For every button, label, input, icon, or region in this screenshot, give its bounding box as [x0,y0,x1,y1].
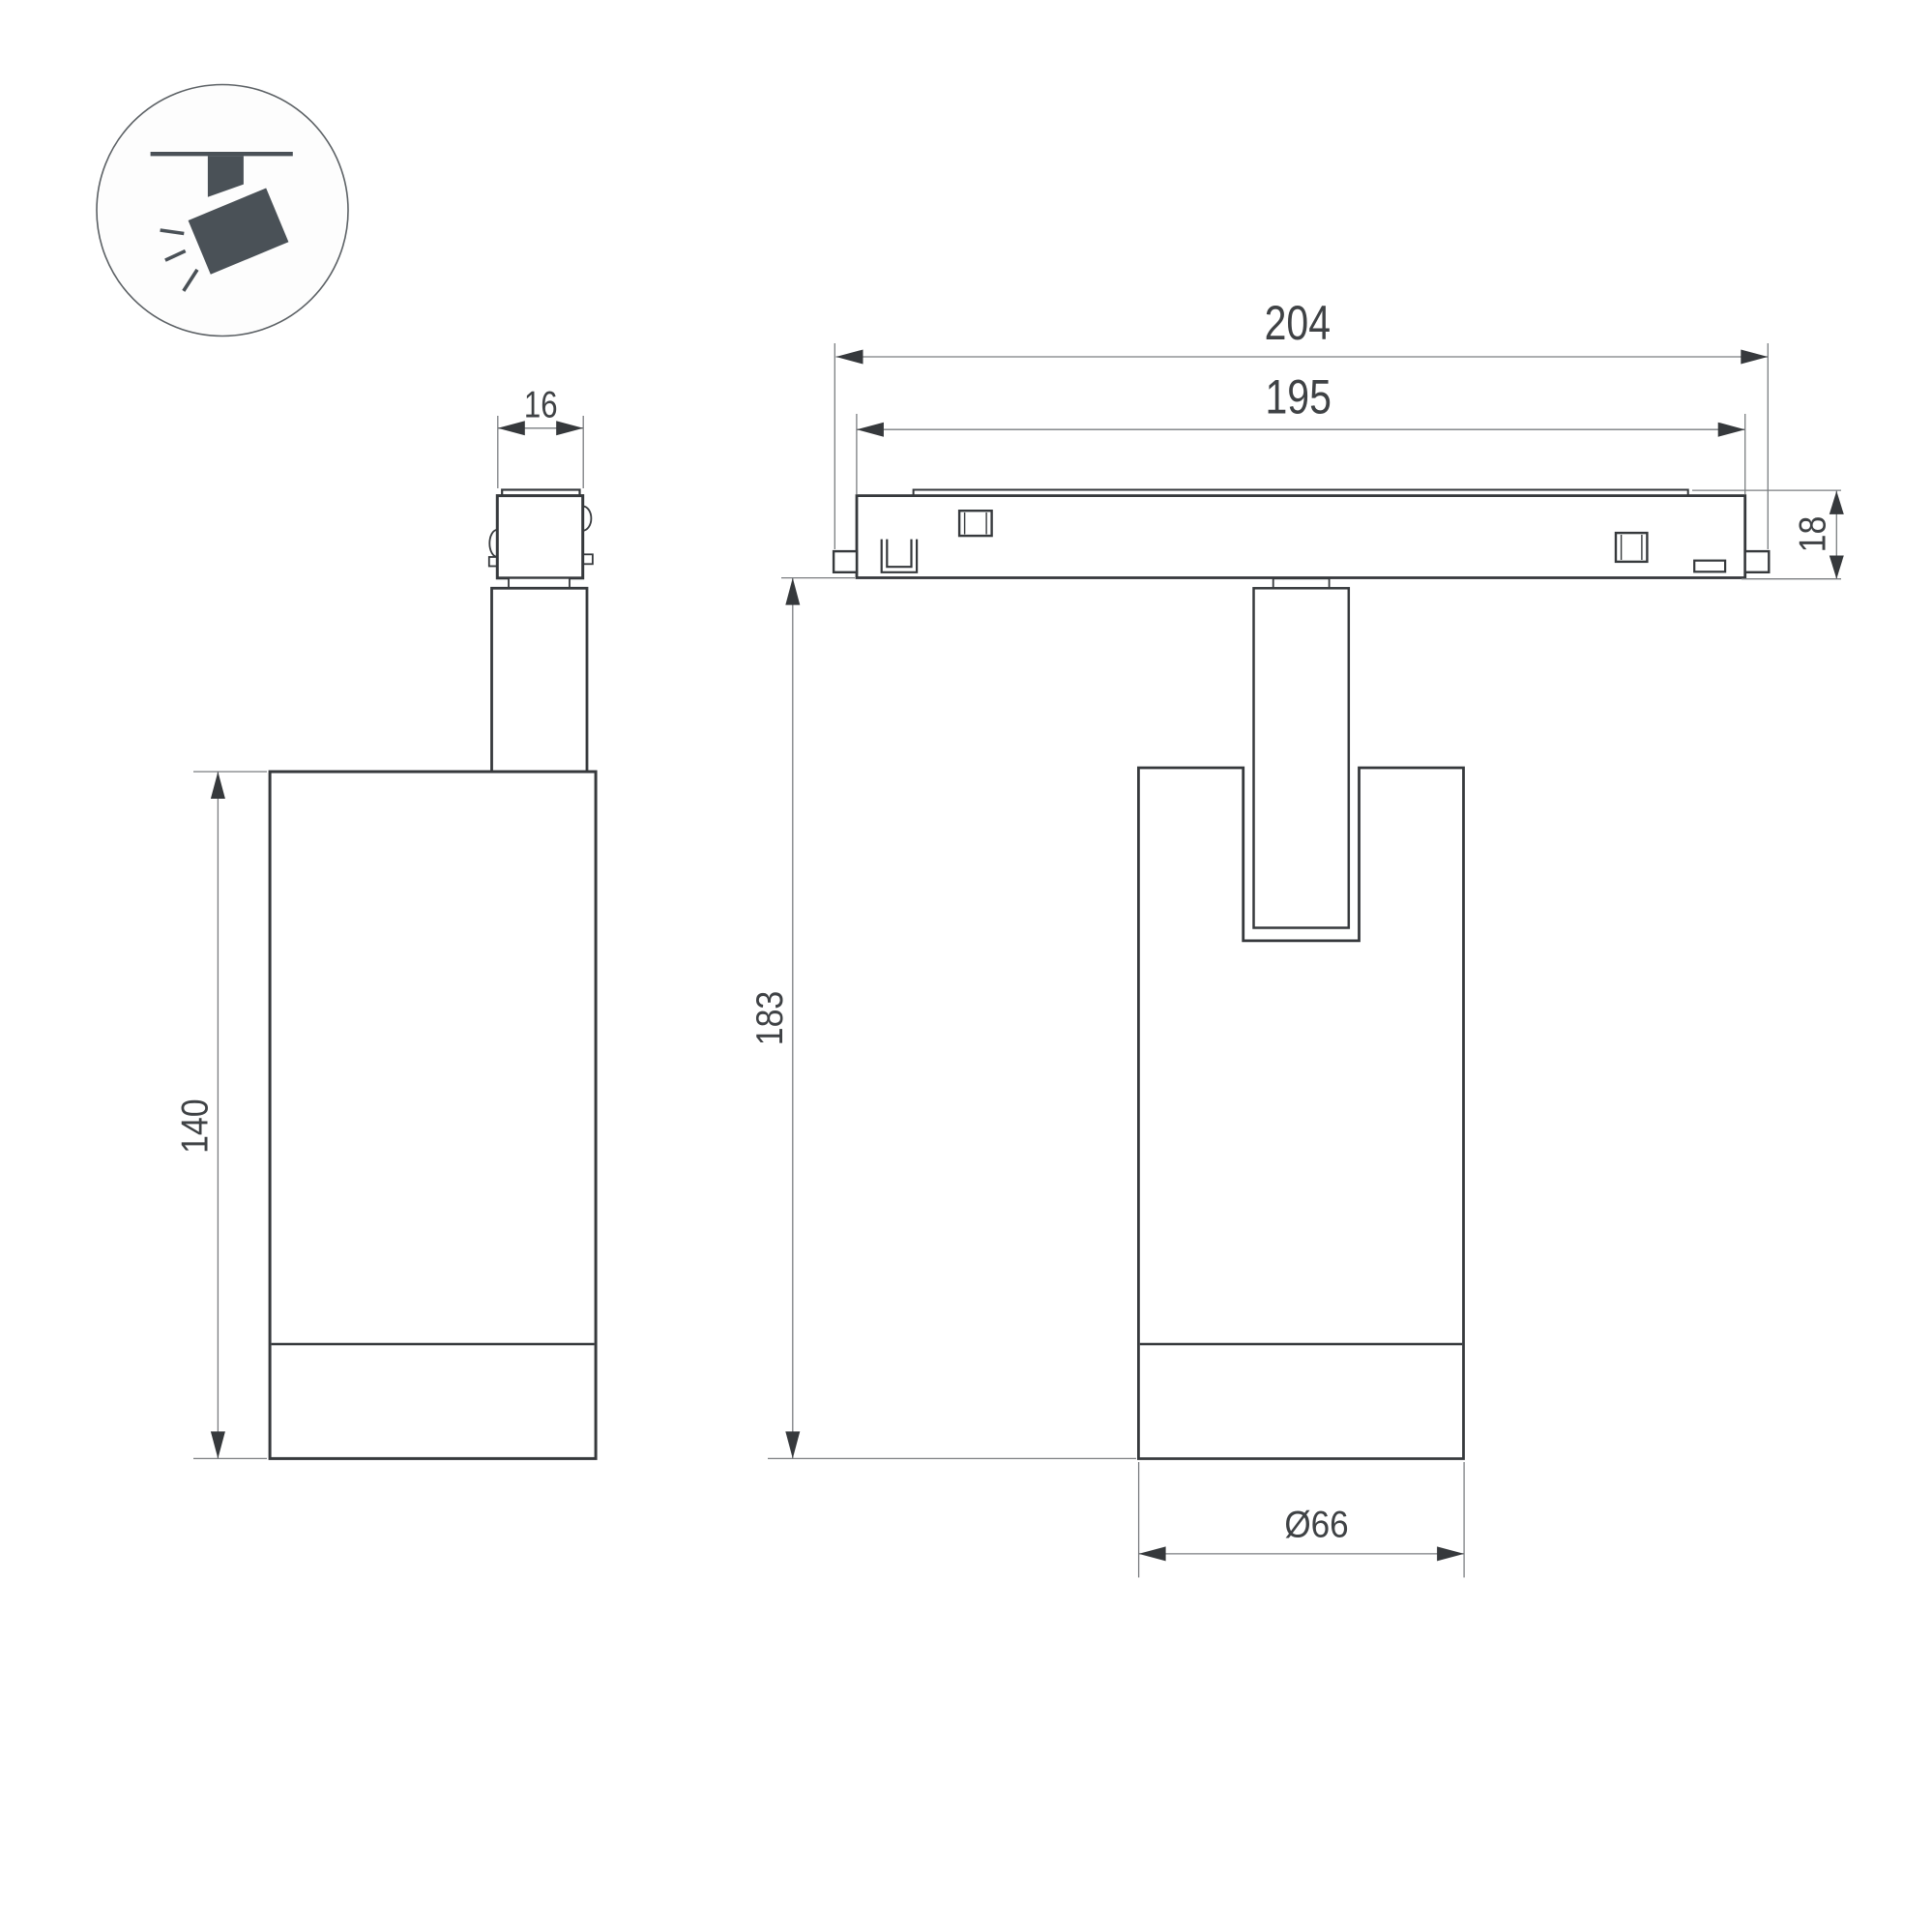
svg-text:204: 204 [1265,296,1331,350]
svg-text:Ø66: Ø66 [1284,1503,1348,1545]
svg-text:140: 140 [173,1098,216,1153]
svg-text:195: 195 [1265,370,1331,424]
svg-text:18: 18 [1791,516,1833,553]
svg-text:183: 183 [748,991,791,1045]
svg-text:16: 16 [524,384,558,425]
